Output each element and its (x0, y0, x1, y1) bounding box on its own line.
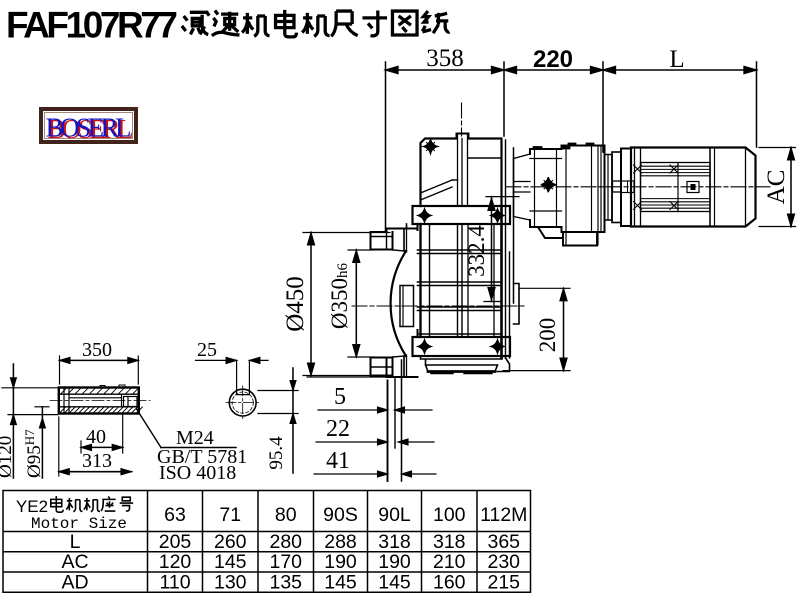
svg-text:90L: 90L (378, 504, 411, 526)
svg-text:318: 318 (433, 531, 466, 553)
svg-text:80: 80 (275, 504, 297, 526)
svg-text:63: 63 (164, 504, 186, 526)
svg-text:145: 145 (324, 572, 357, 594)
svg-text:Ø95H7: Ø95H7 (22, 429, 45, 478)
svg-text:160: 160 (433, 572, 466, 594)
svg-text:71: 71 (219, 504, 241, 526)
svg-text:90S: 90S (323, 504, 358, 526)
svg-text:FAF107R77: FAF107R77 (6, 5, 178, 46)
svg-text:25: 25 (197, 339, 217, 361)
svg-text:230: 230 (487, 551, 520, 573)
svg-text:Ø450: Ø450 (282, 276, 309, 332)
svg-text:AC: AC (61, 551, 88, 573)
svg-text:358: 358 (426, 45, 464, 72)
svg-text:350: 350 (82, 339, 112, 361)
svg-text:ISO 4018: ISO 4018 (159, 462, 236, 484)
svg-text:260: 260 (214, 531, 247, 553)
svg-text:365: 365 (487, 531, 520, 553)
svg-text:135: 135 (269, 572, 302, 594)
svg-text:220: 220 (533, 46, 573, 73)
svg-text:120: 120 (159, 551, 192, 573)
svg-text:BOSERL: BOSERL (46, 113, 132, 143)
svg-text:40: 40 (86, 426, 106, 448)
svg-text:110: 110 (159, 572, 190, 594)
svg-text:22: 22 (326, 416, 350, 442)
svg-text:100: 100 (433, 504, 466, 526)
svg-text:318: 318 (378, 531, 411, 553)
svg-text:YE2: YE2 (16, 497, 48, 516)
svg-text:Ø350h6: Ø350h6 (327, 262, 352, 329)
svg-text:280: 280 (269, 531, 302, 553)
svg-text:L: L (70, 531, 81, 553)
svg-text:170: 170 (269, 551, 302, 573)
svg-text:41: 41 (326, 448, 350, 474)
svg-text:AC: AC (763, 170, 790, 205)
svg-text:95.4: 95.4 (266, 436, 287, 470)
svg-text:130: 130 (214, 572, 247, 594)
svg-text:5: 5 (334, 384, 346, 410)
svg-text:Ø120: Ø120 (0, 436, 16, 478)
svg-text:313: 313 (82, 450, 112, 472)
svg-text:205: 205 (159, 531, 192, 553)
svg-text:215: 215 (487, 572, 520, 594)
svg-text:288: 288 (324, 531, 357, 553)
svg-text:112M: 112M (480, 504, 527, 526)
svg-text:145: 145 (378, 572, 411, 594)
svg-text:200: 200 (535, 318, 560, 353)
svg-text:210: 210 (433, 551, 466, 573)
svg-text:L: L (669, 46, 684, 73)
svg-text:332.4: 332.4 (464, 225, 489, 277)
svg-text:190: 190 (324, 551, 357, 573)
svg-text:145: 145 (214, 551, 247, 573)
svg-text:AD: AD (61, 572, 88, 594)
svg-text:190: 190 (378, 551, 411, 573)
